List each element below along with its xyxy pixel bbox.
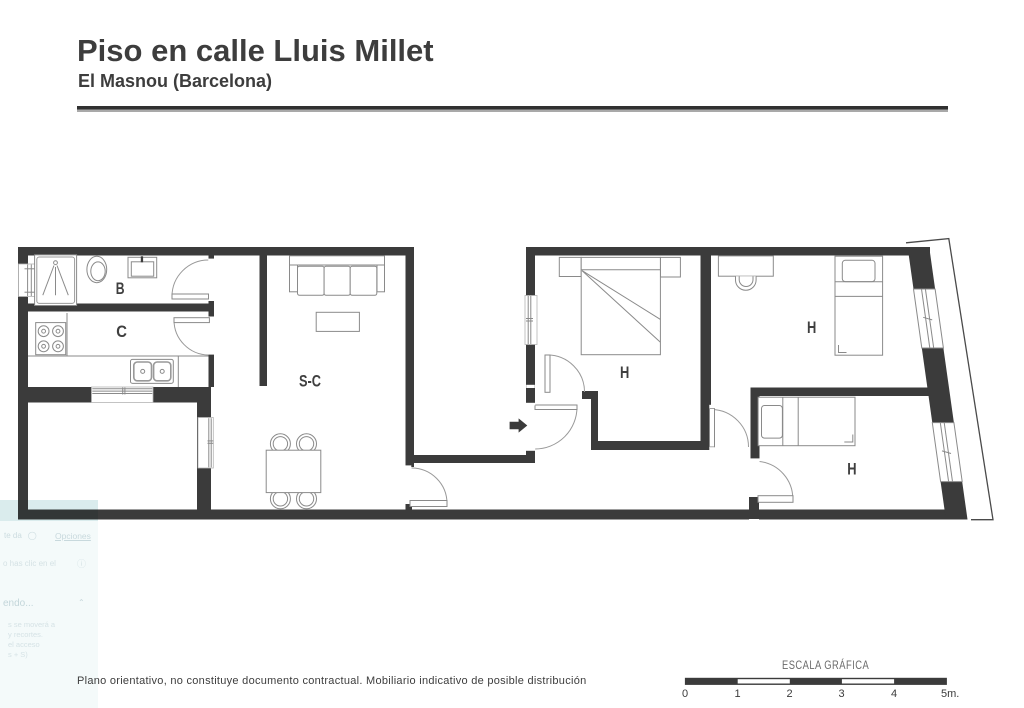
svg-text:1: 1 <box>735 688 741 700</box>
svg-text:C: C <box>116 323 127 341</box>
svg-text:S-C: S-C <box>299 372 321 390</box>
svg-text:5m.: 5m. <box>941 688 959 700</box>
svg-text:B: B <box>116 280 125 298</box>
svg-text:0: 0 <box>682 688 688 700</box>
svg-text:2: 2 <box>787 688 793 700</box>
svg-text:H: H <box>807 319 816 337</box>
svg-text:H: H <box>847 460 856 478</box>
svg-text:3: 3 <box>839 688 845 700</box>
svg-text:H: H <box>620 364 629 382</box>
svg-text:4: 4 <box>891 688 897 700</box>
